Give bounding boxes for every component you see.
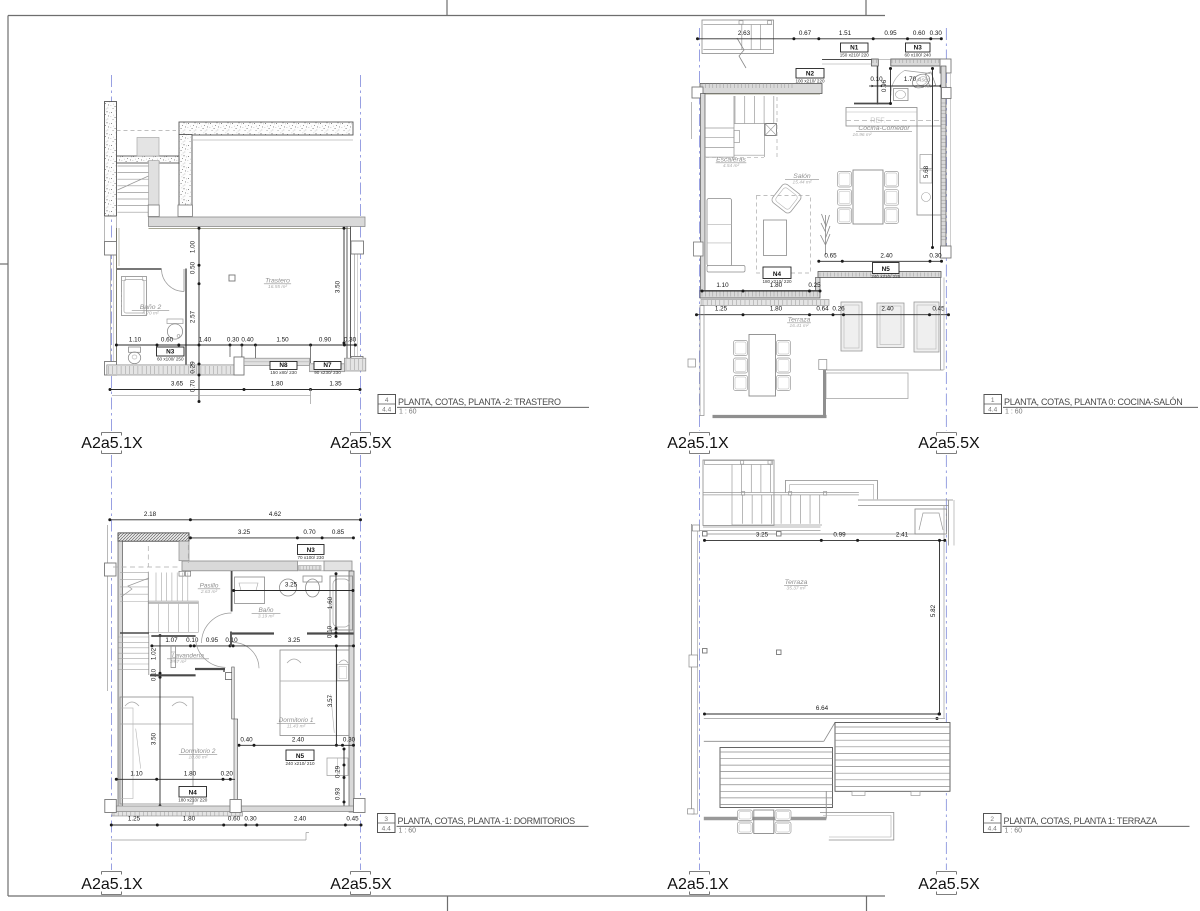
svg-text:1.60: 1.60 xyxy=(327,596,334,609)
svg-text:Aseo: Aseo xyxy=(917,78,931,84)
svg-text:150 x210/ 220: 150 x210/ 220 xyxy=(840,53,870,58)
svg-text:150 x80/ 230: 150 x80/ 230 xyxy=(270,370,297,375)
svg-text:240 x210/ 225: 240 x210/ 225 xyxy=(871,274,901,279)
svg-text:0.45: 0.45 xyxy=(932,306,945,313)
svg-text:PLANTA, COTAS, PLANTA -2: TRAS: PLANTA, COTAS, PLANTA -2: TRASTERO xyxy=(398,397,561,407)
svg-text:0.10: 0.10 xyxy=(327,625,334,638)
svg-text:100 x210/ 220: 100 x210/ 220 xyxy=(795,79,825,84)
svg-text:1.25: 1.25 xyxy=(128,816,141,823)
svg-text:10.88 m²: 10.88 m² xyxy=(189,755,208,761)
svg-text:N4: N4 xyxy=(189,790,198,797)
svg-text:4.54 m²: 4.54 m² xyxy=(723,163,740,169)
svg-text:2.41: 2.41 xyxy=(896,531,909,538)
svg-text:Dormitorio 2: Dormitorio 2 xyxy=(181,748,216,755)
svg-text:3.25: 3.25 xyxy=(285,582,298,589)
svg-text:1.10: 1.10 xyxy=(716,282,729,289)
svg-text:3.19 m²: 3.19 m² xyxy=(258,614,275,620)
svg-text:4.62: 4.62 xyxy=(269,511,282,518)
svg-text:1.80: 1.80 xyxy=(183,816,196,823)
svg-text:3.65: 3.65 xyxy=(171,381,184,388)
svg-text:Salón: Salón xyxy=(793,173,811,180)
svg-text:Cocina-Comedor: Cocina-Comedor xyxy=(858,125,910,132)
svg-text:Baño: Baño xyxy=(259,607,274,614)
svg-text:1.07: 1.07 xyxy=(165,637,178,644)
svg-text:PLANTA, COTAS, PLANTA 0: COCIN: PLANTA, COTAS, PLANTA 0: COCINA-SALÓN xyxy=(1004,397,1182,407)
svg-text:16.96 m²: 16.96 m² xyxy=(853,132,872,138)
svg-text:0.60: 0.60 xyxy=(228,816,241,823)
svg-text:1.00: 1.00 xyxy=(190,240,197,253)
svg-text:1 : 60: 1 : 60 xyxy=(399,828,417,835)
svg-text:0.70: 0.70 xyxy=(190,379,197,392)
svg-text:A2a5.5X: A2a5.5X xyxy=(330,435,392,452)
svg-text:N3: N3 xyxy=(166,349,175,356)
svg-text:3.25: 3.25 xyxy=(288,637,301,644)
svg-text:0.95: 0.95 xyxy=(884,30,897,37)
svg-text:0.20: 0.20 xyxy=(221,770,234,777)
svg-text:0.40: 0.40 xyxy=(241,337,254,344)
svg-text:2.40: 2.40 xyxy=(880,252,893,259)
svg-text:4.70 m²: 4.70 m² xyxy=(142,311,159,317)
svg-text:Trastero: Trastero xyxy=(265,278,290,285)
svg-text:1.57 m²: 1.57 m² xyxy=(170,659,187,665)
svg-text:2.18: 2.18 xyxy=(144,511,157,518)
svg-text:2.40: 2.40 xyxy=(881,306,894,313)
svg-text:4.4: 4.4 xyxy=(382,826,391,833)
svg-text:A2a5.1X: A2a5.1X xyxy=(81,876,143,893)
svg-text:1 : 60: 1 : 60 xyxy=(399,409,417,416)
svg-text:35.37 m²: 35.37 m² xyxy=(787,586,806,592)
svg-text:16.55 m²: 16.55 m² xyxy=(268,284,287,290)
svg-text:1: 1 xyxy=(991,397,995,404)
svg-text:0.40: 0.40 xyxy=(240,736,253,743)
svg-text:1.80: 1.80 xyxy=(271,381,284,388)
svg-text:90 x230/ 230: 90 x230/ 230 xyxy=(314,370,341,375)
svg-text:0.99: 0.99 xyxy=(833,531,846,538)
svg-text:0.60: 0.60 xyxy=(161,337,174,344)
svg-text:1.35: 1.35 xyxy=(329,381,342,388)
svg-text:2.40: 2.40 xyxy=(294,816,307,823)
svg-text:1.25: 1.25 xyxy=(715,306,728,313)
svg-text:0.29: 0.29 xyxy=(190,361,197,374)
svg-text:0.30: 0.30 xyxy=(930,30,943,37)
svg-text:15.44 m²: 15.44 m² xyxy=(793,180,812,186)
svg-text:1.40: 1.40 xyxy=(199,337,212,344)
svg-text:Lavandería: Lavandería xyxy=(172,653,204,660)
svg-text:N8: N8 xyxy=(279,362,288,369)
svg-text:A2a5.1X: A2a5.1X xyxy=(81,435,143,452)
svg-text:4.4: 4.4 xyxy=(988,826,997,833)
svg-text:N4: N4 xyxy=(773,271,782,278)
svg-text:3.57: 3.57 xyxy=(327,694,334,707)
svg-text:0.30: 0.30 xyxy=(344,337,357,344)
svg-text:0.65: 0.65 xyxy=(824,252,837,259)
svg-text:0.10: 0.10 xyxy=(186,637,199,644)
svg-text:N3: N3 xyxy=(914,45,923,52)
svg-text:0.67: 0.67 xyxy=(799,30,812,37)
svg-text:3.50: 3.50 xyxy=(151,732,158,745)
svg-text:2.50 m²: 2.50 m² xyxy=(914,84,932,90)
svg-text:0.26: 0.26 xyxy=(832,306,845,313)
svg-text:11.43 m²: 11.43 m² xyxy=(287,724,306,730)
svg-text:Escaleras: Escaleras xyxy=(716,157,746,164)
svg-text:1.50: 1.50 xyxy=(276,337,289,344)
svg-text:0.30: 0.30 xyxy=(227,337,240,344)
svg-text:1.02: 1.02 xyxy=(151,647,158,660)
svg-text:0.45: 0.45 xyxy=(346,816,359,823)
svg-text:1 : 60: 1 : 60 xyxy=(1005,409,1023,416)
svg-text:1.10: 1.10 xyxy=(129,337,142,344)
svg-text:A2a5.1X: A2a5.1X xyxy=(667,876,729,893)
svg-text:REF.: REF. xyxy=(870,116,886,125)
svg-text:Baño 2: Baño 2 xyxy=(140,304,162,311)
svg-text:4.4: 4.4 xyxy=(988,407,997,414)
svg-text:0.70: 0.70 xyxy=(303,529,316,536)
svg-text:0.30: 0.30 xyxy=(929,252,942,259)
svg-text:Terraza: Terraza xyxy=(785,579,808,586)
svg-text:3.50: 3.50 xyxy=(335,280,342,293)
svg-text:1.80: 1.80 xyxy=(770,282,783,289)
svg-text:16.41 m²: 16.41 m² xyxy=(790,323,809,329)
svg-text:1.80: 1.80 xyxy=(770,306,783,313)
svg-text:N7: N7 xyxy=(323,362,332,369)
svg-text:2.40: 2.40 xyxy=(292,736,305,743)
svg-text:N5: N5 xyxy=(296,753,305,760)
svg-text:A2a5.5X: A2a5.5X xyxy=(330,876,392,893)
svg-text:70 x100/ 230: 70 x100/ 230 xyxy=(297,555,324,560)
svg-text:2: 2 xyxy=(990,816,994,823)
svg-text:Dormitorio 1: Dormitorio 1 xyxy=(279,717,314,724)
svg-text:1 : 60: 1 : 60 xyxy=(1005,828,1023,835)
svg-text:2.63: 2.63 xyxy=(738,30,751,37)
svg-text:Terraza: Terraza xyxy=(788,317,811,324)
svg-text:60 x100/ 250: 60 x100/ 250 xyxy=(157,357,184,362)
svg-text:N1: N1 xyxy=(850,45,859,52)
svg-text:A2a5.5X: A2a5.5X xyxy=(918,876,980,893)
svg-text:5.82: 5.82 xyxy=(930,604,937,617)
svg-text:N2: N2 xyxy=(806,71,815,78)
svg-text:240 x210/ 210: 240 x210/ 210 xyxy=(285,761,315,766)
svg-text:3.25: 3.25 xyxy=(756,531,769,538)
svg-text:1.10: 1.10 xyxy=(130,770,143,777)
svg-text:0.95: 0.95 xyxy=(206,637,219,644)
svg-text:6.64: 6.64 xyxy=(816,705,829,712)
svg-text:0.90: 0.90 xyxy=(319,337,332,344)
svg-text:5.68: 5.68 xyxy=(923,165,930,178)
svg-text:3: 3 xyxy=(384,816,388,823)
svg-text:0.64: 0.64 xyxy=(816,306,829,313)
svg-text:0.85: 0.85 xyxy=(332,529,345,536)
svg-text:4: 4 xyxy=(385,397,389,404)
svg-text:Pasillo: Pasillo xyxy=(200,583,219,590)
svg-text:A2a5.1X: A2a5.1X xyxy=(667,435,729,452)
svg-text:0.25: 0.25 xyxy=(808,282,821,289)
svg-text:N5: N5 xyxy=(882,266,891,273)
svg-text:PLANTA, COTAS, PLANTA 1: TERRA: PLANTA, COTAS, PLANTA 1: TERRAZA xyxy=(1004,816,1158,826)
svg-text:0.30: 0.30 xyxy=(343,736,356,743)
svg-text:60 x100/ 240: 60 x100/ 240 xyxy=(904,53,931,58)
svg-text:2.63 m²: 2.63 m² xyxy=(200,589,218,595)
svg-text:A2a5.5X: A2a5.5X xyxy=(918,435,980,452)
svg-text:4.4: 4.4 xyxy=(382,407,391,414)
svg-text:1.51: 1.51 xyxy=(839,30,852,37)
svg-text:1.80: 1.80 xyxy=(184,770,197,777)
svg-text:PLANTA, COTAS, PLANTA -1: DORM: PLANTA, COTAS, PLANTA -1: DORMITORIOS xyxy=(398,816,576,826)
svg-text:180 x210/ 220: 180 x210/ 220 xyxy=(178,798,208,803)
svg-text:0.50: 0.50 xyxy=(190,261,197,274)
svg-text:0.60: 0.60 xyxy=(913,30,926,37)
svg-text:N3: N3 xyxy=(307,547,316,554)
svg-text:0.29: 0.29 xyxy=(335,765,342,778)
svg-text:2.57: 2.57 xyxy=(190,310,197,323)
svg-text:0.30: 0.30 xyxy=(244,816,257,823)
svg-text:0.93: 0.93 xyxy=(335,787,342,800)
svg-text:3.25: 3.25 xyxy=(238,529,251,536)
svg-text:1.70: 1.70 xyxy=(904,76,917,83)
